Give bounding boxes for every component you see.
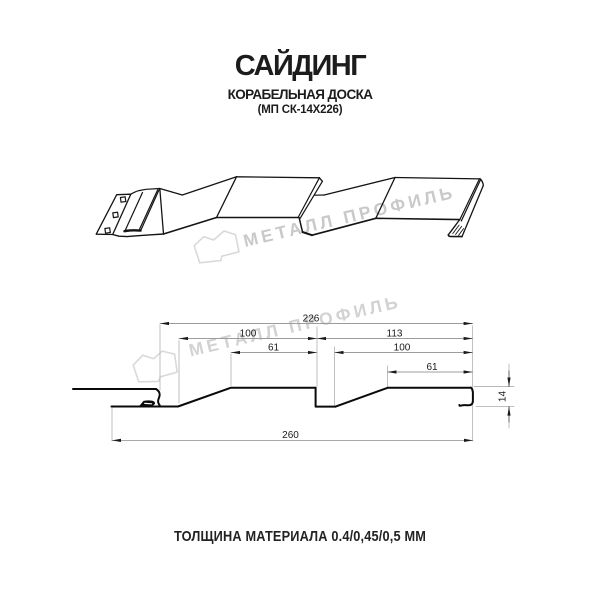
svg-text:100: 100: [240, 329, 257, 340]
svg-text:61: 61: [268, 343, 280, 354]
svg-text:226: 226: [303, 314, 320, 325]
svg-text:14: 14: [498, 391, 509, 403]
svg-text:100: 100: [394, 343, 411, 354]
svg-text:113: 113: [387, 329, 403, 340]
svg-text:МЕТАЛЛ ПРОФИЛЬ: МЕТАЛЛ ПРОФИЛЬ: [241, 182, 457, 251]
svg-text:61: 61: [426, 362, 438, 373]
svg-text:МЕТАЛЛ ПРОФИЛЬ: МЕТАЛЛ ПРОФИЛЬ: [187, 291, 403, 360]
svg-text:260: 260: [282, 430, 299, 441]
